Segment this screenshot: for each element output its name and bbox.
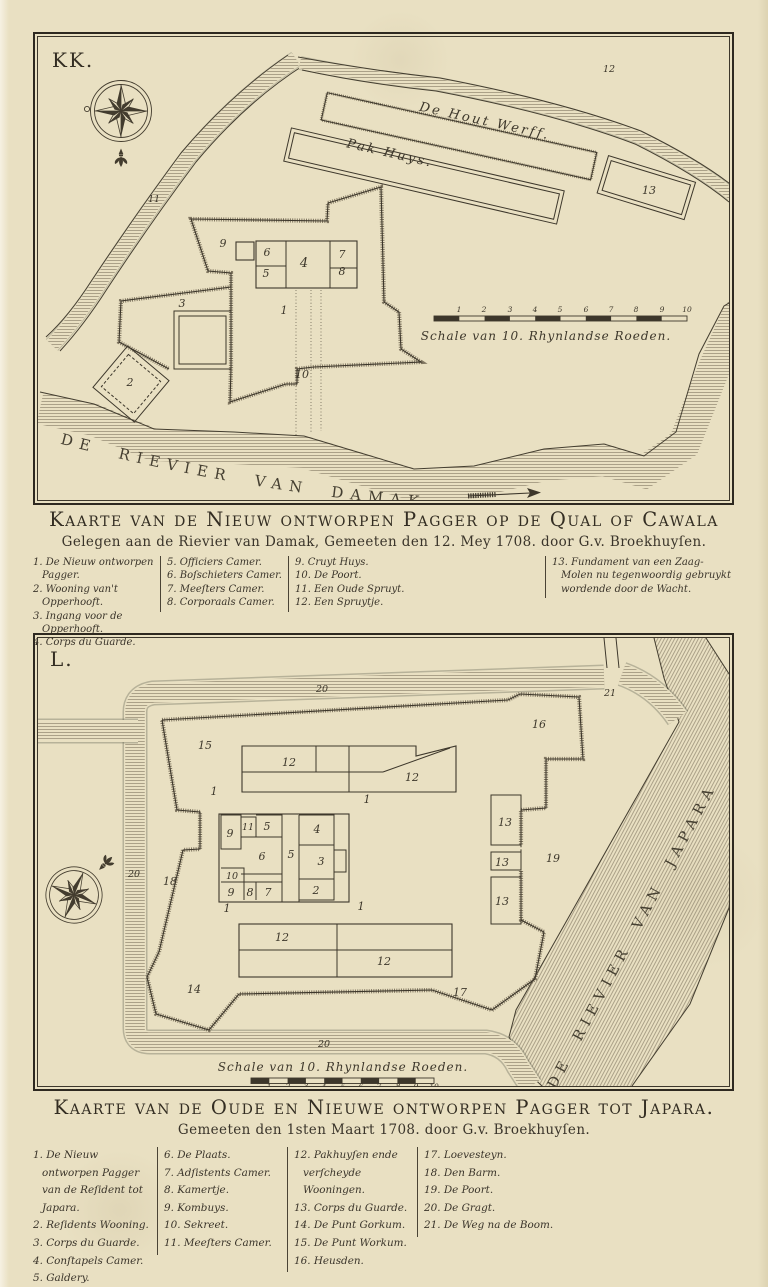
pakhuysen-south [239, 924, 452, 977]
scale-bar [434, 316, 687, 321]
compass-rose-icon [84, 81, 151, 168]
scale-tick-label: 10 [429, 1082, 439, 1086]
legend-item: 6. De Plaats. [164, 1147, 284, 1165]
legend-item: 7. Adſistents Camer. [164, 1165, 284, 1183]
feature-number: 7 [339, 248, 346, 261]
feature-number: 20 [315, 684, 328, 695]
entrance-court [174, 311, 231, 369]
scale-tick-label: 4 [532, 305, 538, 314]
feature-number: 7 [265, 886, 272, 899]
residence-complex [219, 814, 349, 902]
feature-number: 14 [187, 983, 201, 996]
stream-oude-spruyt [46, 55, 304, 351]
scale-tick-label: 7 [609, 305, 614, 314]
feature-number: 10 [226, 871, 238, 882]
scale-tick-label: 2 [285, 1082, 291, 1086]
map2-subtitle: Gemeeten den 1sten Maart 1708. door G.v.… [0, 1122, 768, 1138]
map1-title: Kaarte van de Nieuw ontworpen Pagger op … [0, 508, 768, 531]
feature-number: 6 [264, 246, 271, 259]
legend-item: 19. De Poort. [424, 1182, 732, 1200]
legend-item: 9. Kombuys. [164, 1200, 284, 1218]
feature-number: 9 [220, 237, 227, 250]
legend-item: 9. Cruyt Huys. [295, 556, 542, 569]
map2-legend: 1. De Nieuw ontworpen Pagger van de Reſi… [33, 1147, 737, 1287]
map2-title: Kaarte van de Oude en Nieuwe ontworpen P… [0, 1096, 768, 1119]
feature-number: 2 [126, 376, 134, 389]
antique-map-sheet: Schale van 10. Rhynlandse Roeden. KK. De… [0, 0, 768, 1287]
feature-number: 12 [405, 771, 419, 784]
feature-number: 20 [127, 869, 140, 880]
legend-item: 1. De Nieuw ontworpen Pagger. [33, 556, 157, 583]
feature-number: 12 [275, 931, 289, 944]
legend-item: 16. Heusden. [294, 1253, 414, 1271]
scale-tick-label: 5 [558, 305, 563, 314]
feature-number: 18 [163, 875, 177, 888]
legend-item: 8. Kamertje. [164, 1182, 284, 1200]
legend-item: 5. Officiers Camer. [167, 556, 285, 569]
gate-road-dotted [296, 290, 321, 435]
feature-number: 10 [295, 368, 309, 381]
feature-number: 5 [288, 848, 295, 861]
legend-item: 5. Galdery. [33, 1270, 154, 1287]
feature-number: 1 [211, 785, 218, 798]
legend-item: 13. Corps du Guarde. [294, 1200, 414, 1218]
scale-tick-label: 1 [267, 1082, 272, 1086]
legend-item: 2. Wooning van't Opperhooft. [33, 583, 157, 610]
feature-number: 12 [282, 756, 296, 769]
legend-item: 1. De Nieuw ontworpen Pagger van de Reſi… [33, 1147, 154, 1217]
feature-number: 19 [546, 852, 560, 865]
legend-column: 17. Loevesteyn.18. Den Barm.19. De Poort… [417, 1147, 735, 1237]
scale-tick-label: 9 [660, 305, 665, 314]
scale-tick-label: 4 [321, 1082, 327, 1086]
feature-number: 17 [453, 986, 467, 999]
feature-number: 4 [299, 256, 308, 271]
feature-number: 15 [198, 739, 212, 752]
legend-item: 13. Fundament van een Zaag-Molen nu tege… [552, 556, 732, 596]
legend-item: 4. Conſtapels Camer. [33, 1253, 154, 1271]
scale-tick-label: 8 [634, 305, 639, 314]
feature-number: 8 [247, 886, 254, 899]
legend-item: 12. Een Spruytje. [295, 596, 542, 609]
legend-item: 20. De Gragt. [424, 1200, 732, 1218]
legend-item: 18. Den Barm. [424, 1165, 732, 1183]
legend-column: 12. Pakhuyſen ende verſcheyde Wooningen.… [287, 1147, 417, 1272]
feature-number: 21 [603, 688, 616, 699]
feature-number: 2 [312, 884, 320, 897]
legend-item: 10. De Poort. [295, 569, 542, 582]
legend-item: 12. Pakhuyſen ende verſcheyde Wooningen. [294, 1147, 414, 1200]
plate-letter: L. [50, 647, 74, 671]
scale-tick-label: 7 [377, 1082, 382, 1086]
legend-item: 6. Boſschieters Camer. [167, 569, 285, 582]
feature-number: 9 [228, 886, 235, 899]
feature-number: 1 [224, 902, 231, 915]
scale-tick-label: 3 [304, 1082, 309, 1086]
map2-drawing: Schale van 10. Rhynlandse Roeden. L. DE … [38, 638, 729, 1086]
legend-item: 3. Corps du Guarde. [33, 1235, 154, 1253]
legend-column: 9. Cruyt Huys.10. De Poort.11. Een Oude … [288, 556, 545, 612]
feature-number: 5 [264, 820, 271, 833]
feature-number: 8 [339, 265, 346, 278]
legend-item: 21. De Weg na de Boom. [424, 1217, 732, 1235]
feature-number: 3 [179, 297, 186, 310]
legend-item: 7. Meeſters Camer. [167, 583, 285, 596]
legend-column: 6. De Plaats.7. Adſistents Camer.8. Kame… [157, 1147, 287, 1255]
map1-drawing: Schale van 10. Rhynlandse Roeden. KK. De… [38, 37, 729, 500]
feature-number: 1 [364, 793, 371, 806]
feature-number: 16 [532, 718, 546, 731]
scale-caption: Schale van 10. Rhynlandse Roeden. [421, 329, 671, 343]
legend-item: 11. Meeſters Camer. [164, 1235, 284, 1253]
scale-tick-label: 5 [341, 1082, 346, 1086]
scale-tick-label: 10 [682, 305, 692, 314]
legend-column: 5. Officiers Camer.6. Boſschieters Camer… [160, 556, 288, 612]
legend-item: 11. Een Oude Spruyt. [295, 583, 542, 596]
feature-number: 5 [263, 267, 270, 280]
fort-japara-outline [147, 694, 583, 1030]
pakhuysen-north [242, 746, 456, 792]
scale-tick-label: 6 [359, 1082, 364, 1086]
feature-number: 1 [281, 304, 288, 317]
feature-number: 9 [227, 827, 234, 840]
legend-item: 2. Reſidents Wooning. [33, 1217, 154, 1235]
feature-number: 11 [242, 822, 254, 833]
legend-item: 10. Sekreet. [164, 1217, 284, 1235]
legend-column: 1. De Nieuw ontworpen Pagger van de Reſi… [33, 1147, 157, 1287]
scale-tick-label: 1 [457, 305, 462, 314]
feature-number: 13 [495, 895, 509, 908]
feature-number: 1 [358, 900, 365, 913]
fort-pagger-outline [119, 187, 421, 402]
legend-item: 15. De Punt Workum. [294, 1235, 414, 1253]
river-japara [509, 638, 729, 1086]
road-to-boom [604, 638, 619, 668]
plate-letter: KK. [52, 48, 94, 72]
legend-item: 14. De Punt Gorkum. [294, 1217, 414, 1235]
legend-item: 17. Loevesteyn. [424, 1147, 732, 1165]
feature-number: 6 [259, 850, 266, 863]
feature-number: 12 [377, 955, 391, 968]
map2-frame: Schale van 10. Rhynlandse Roeden. L. DE … [33, 633, 734, 1091]
scale-tick-label: 8 [396, 1082, 401, 1086]
compass-rose-icon [38, 852, 117, 931]
feature-number: 4 [313, 823, 321, 836]
feature-number: 20 [317, 1039, 330, 1050]
scale-tick-label: 9 [414, 1082, 419, 1086]
feature-number: 11 [148, 194, 160, 205]
scale-caption: Schale van 10. Rhynlandse Roeden. [218, 1060, 468, 1074]
legend-item: 8. Corporaals Camer. [167, 596, 285, 609]
scale-tick-label: 3 [508, 305, 513, 314]
map1-subtitle: Gelegen aan de Rievier van Damak, Gemeet… [0, 534, 768, 550]
feature-number: 13 [642, 184, 656, 197]
scale-tick-label: 6 [584, 305, 589, 314]
feature-number: 3 [318, 855, 325, 868]
legend-column: 13. Fundament van een Zaag-Molen nu tege… [545, 556, 735, 598]
feature-number: 13 [495, 856, 509, 869]
feature-number: 13 [498, 816, 512, 829]
feature-number: 12 [603, 64, 615, 75]
map1-frame: Schale van 10. Rhynlandse Roeden. KK. De… [33, 32, 734, 505]
scale-tick-label: 2 [481, 305, 487, 314]
